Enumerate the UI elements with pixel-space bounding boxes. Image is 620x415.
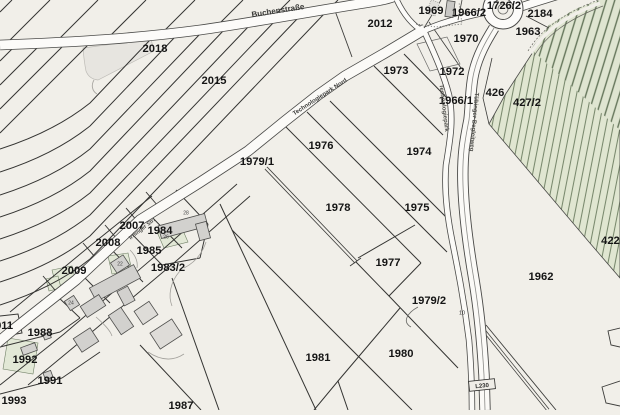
svg-text:1975: 1975: [405, 202, 430, 214]
svg-text:1962: 1962: [529, 271, 554, 283]
svg-text:1979/1: 1979/1: [240, 156, 274, 168]
svg-text:1969: 1969: [419, 5, 444, 17]
svg-text:1726/2: 1726/2: [487, 0, 521, 12]
svg-text:427/2: 427/2: [513, 97, 541, 109]
svg-text:1972: 1972: [440, 66, 465, 78]
svg-text:2018: 2018: [143, 43, 168, 55]
svg-text:1980: 1980: [389, 348, 414, 360]
svg-text:1992: 1992: [13, 354, 38, 366]
svg-text:10: 10: [459, 310, 465, 316]
svg-text:2009: 2009: [62, 265, 87, 277]
svg-text:1979/2: 1979/2: [412, 295, 446, 307]
svg-text:22: 22: [117, 261, 123, 267]
svg-text:1978: 1978: [326, 202, 351, 214]
svg-text:1973: 1973: [384, 65, 409, 77]
svg-text:1991: 1991: [38, 375, 63, 387]
svg-text:1966/2: 1966/2: [452, 7, 486, 19]
svg-text:1983/2: 1983/2: [151, 262, 185, 274]
svg-text:1977: 1977: [376, 257, 401, 269]
svg-text:1985: 1985: [137, 245, 162, 257]
svg-text:2015: 2015: [202, 75, 227, 87]
svg-text:1993: 1993: [2, 395, 27, 407]
svg-text:2012: 2012: [368, 18, 393, 30]
svg-text:1984: 1984: [148, 225, 174, 237]
svg-text:28: 28: [183, 210, 189, 216]
svg-text:1970: 1970: [454, 33, 479, 45]
svg-text:24: 24: [68, 300, 74, 306]
svg-text:1988: 1988: [28, 327, 53, 339]
svg-text:1981: 1981: [306, 352, 331, 364]
svg-text:2184: 2184: [528, 8, 554, 20]
svg-text:426: 426: [486, 87, 505, 99]
svg-text:1974: 1974: [407, 146, 433, 158]
svg-text:1976: 1976: [309, 140, 334, 152]
svg-text:2011: 2011: [0, 320, 13, 332]
svg-text:422/: 422/: [601, 235, 620, 247]
svg-text:26: 26: [163, 234, 169, 240]
svg-text:1987: 1987: [169, 400, 194, 410]
svg-text:2008: 2008: [96, 237, 121, 249]
svg-text:1963: 1963: [516, 26, 541, 38]
